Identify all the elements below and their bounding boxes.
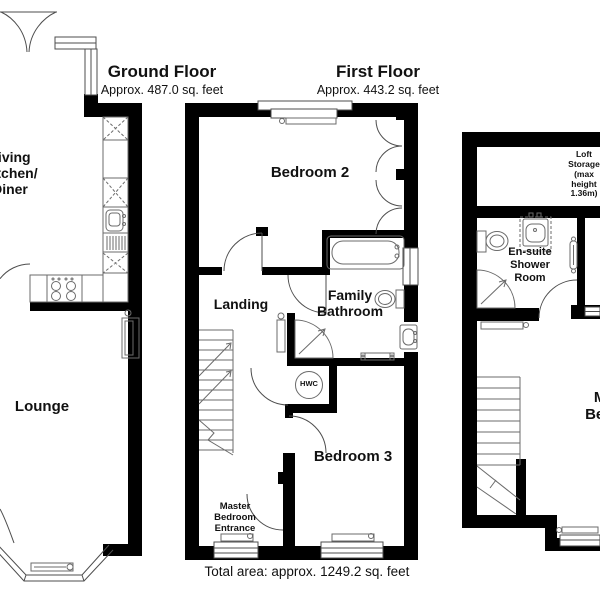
bedroom2-door-arc — [224, 233, 262, 271]
wardrobe-icon — [376, 112, 404, 238]
ground-floor-title: Ground Floor — [92, 62, 232, 82]
landing-radiator-icon — [277, 313, 285, 352]
room-label-loft-storage: Loft Storage (max height 1.36m) — [558, 150, 600, 199]
room-label-ensuite: En-suite Shower Room — [480, 246, 580, 284]
ff-bottom-left-window-icon — [214, 534, 258, 559]
first-floor-area: Approx. 443.2 sq. feet — [308, 83, 448, 98]
bay-window-icon — [0, 543, 113, 581]
room-label-living-kitchen-diner: Living Kitchen/ Diner — [0, 149, 60, 198]
first-floor-title: First Floor — [308, 62, 448, 82]
kitchen-door-arc — [0, 264, 30, 279]
room-label-lounge: Lounge — [0, 398, 92, 415]
ff-bottom-right-window-icon — [321, 534, 383, 559]
french-doors-icon — [0, 12, 57, 52]
basin-icon — [400, 322, 418, 352]
lounge-door-arc — [0, 509, 14, 543]
cooker-icon — [47, 275, 82, 302]
kitchen-units-icon — [30, 117, 128, 302]
room-label-family-bathroom: Family Bathroom — [290, 287, 410, 319]
sf-radiator-icon — [481, 322, 529, 329]
ff-top-radiator-icon — [280, 118, 337, 124]
room-label-landing: Landing — [181, 296, 301, 312]
ground-floor-area: Approx. 487.0 sq. feet — [92, 83, 232, 98]
corner-window-icon — [55, 37, 97, 95]
corner-shower-icon — [295, 320, 333, 358]
room-label-bedroom3: Bedroom 3 — [283, 448, 423, 465]
ff-stairs — [199, 330, 233, 455]
floorplan-page: Ground Floor Approx. 487.0 sq. feet Firs… — [0, 0, 600, 600]
room-label-master-bedroom: Master Bedroom — [568, 389, 600, 424]
room-label-master-entrance: Master Bedroom Entrance — [185, 501, 285, 534]
sf-stairs — [477, 377, 520, 514]
bathtub-icon — [327, 236, 404, 269]
label-hwc: HWC — [289, 380, 329, 389]
total-area-text: Total area: approx. 1249.2 sq. feet — [157, 564, 457, 580]
sf-bottom-window-icon — [557, 527, 600, 546]
sf-right-window-icon — [585, 307, 600, 316]
bathroom-window-icon — [403, 248, 418, 285]
room-label-bedroom2: Bedroom 2 — [240, 164, 380, 181]
